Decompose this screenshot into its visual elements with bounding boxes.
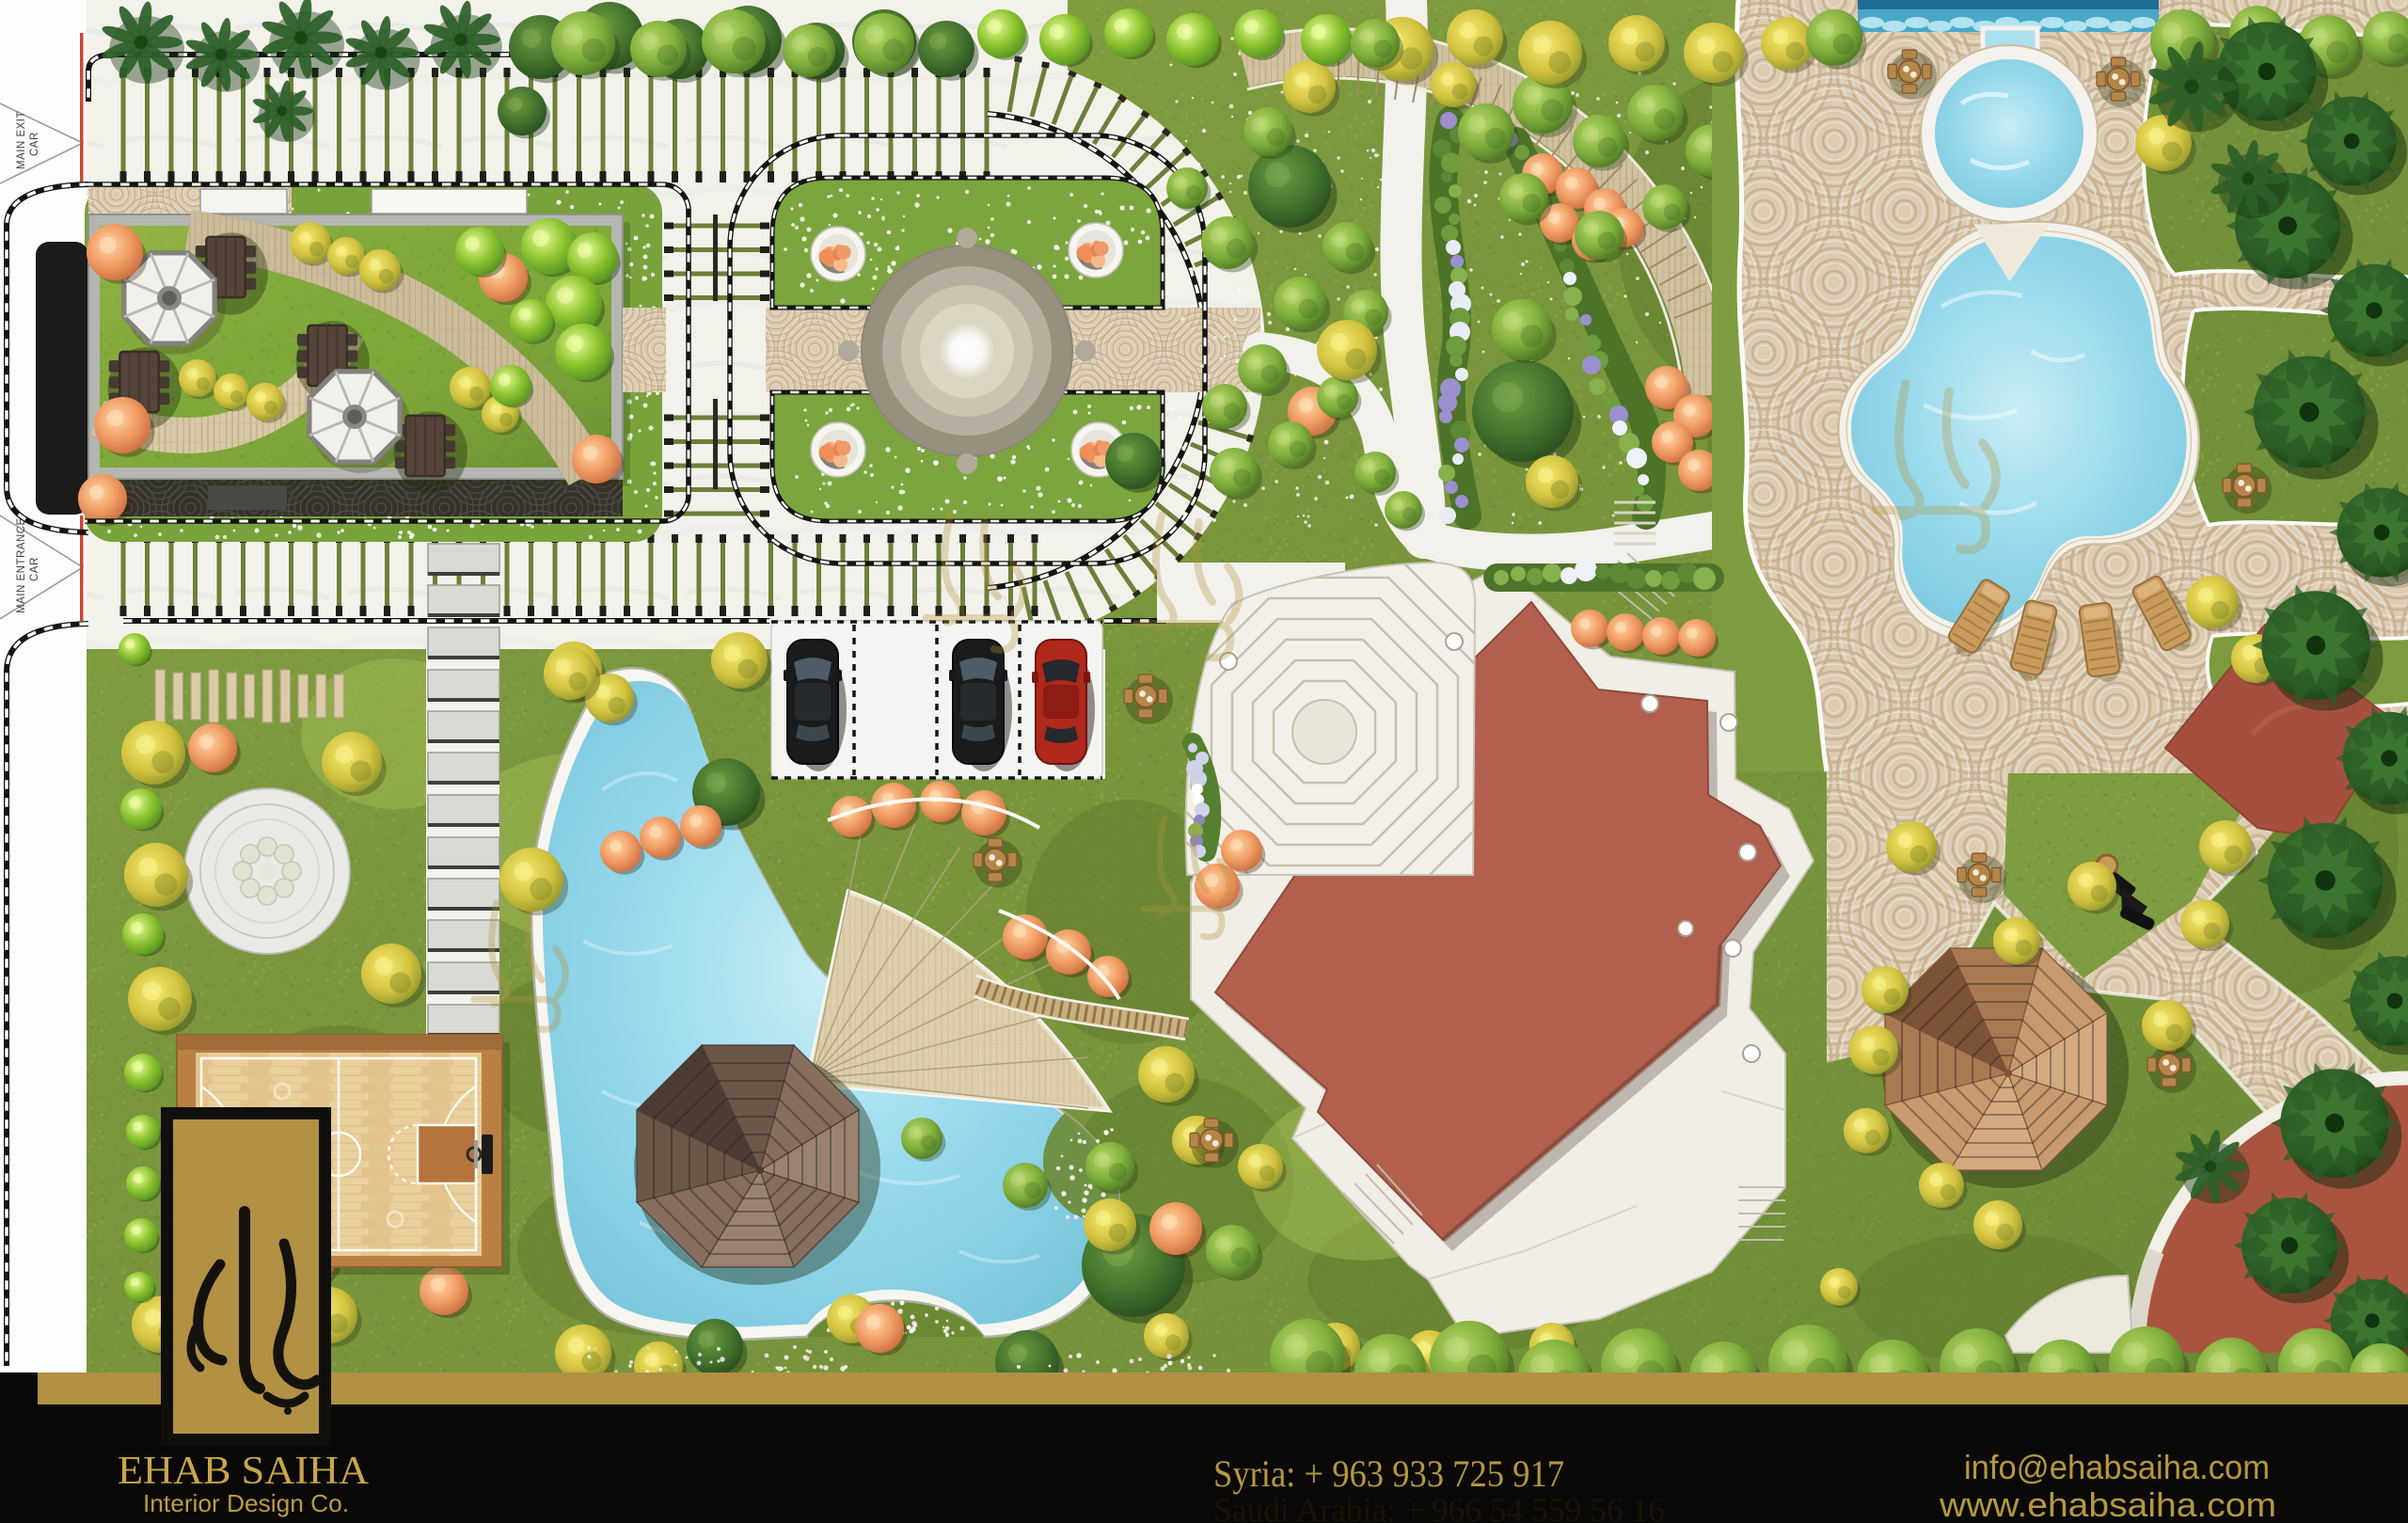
svg-text:Syria: + 963 933 725 917: Syria: + 963 933 725 917 (1213, 1452, 1564, 1495)
svg-text:Saudi Arabia: + 966 54 559 56: Saudi Arabia: + 966 54 559 56 16 (1213, 1491, 1665, 1523)
svg-text:CAR: CAR (29, 557, 40, 581)
svg-text:MAIN EXIT: MAIN EXIT (16, 111, 27, 169)
svg-text:www.ehabsaiha.com: www.ehabsaiha.com (1939, 1485, 2276, 1523)
svg-text:Interior Design Co.: Interior Design Co. (143, 1489, 349, 1517)
svg-text:MAIN ENTRANCE: MAIN ENTRANCE (16, 517, 27, 613)
svg-text:EHAB SAIHA: EHAB SAIHA (118, 1450, 370, 1493)
svg-text:CAR: CAR (29, 132, 40, 156)
svg-text:info@ehabsaiha.com: info@ehabsaiha.com (1964, 1448, 2270, 1486)
